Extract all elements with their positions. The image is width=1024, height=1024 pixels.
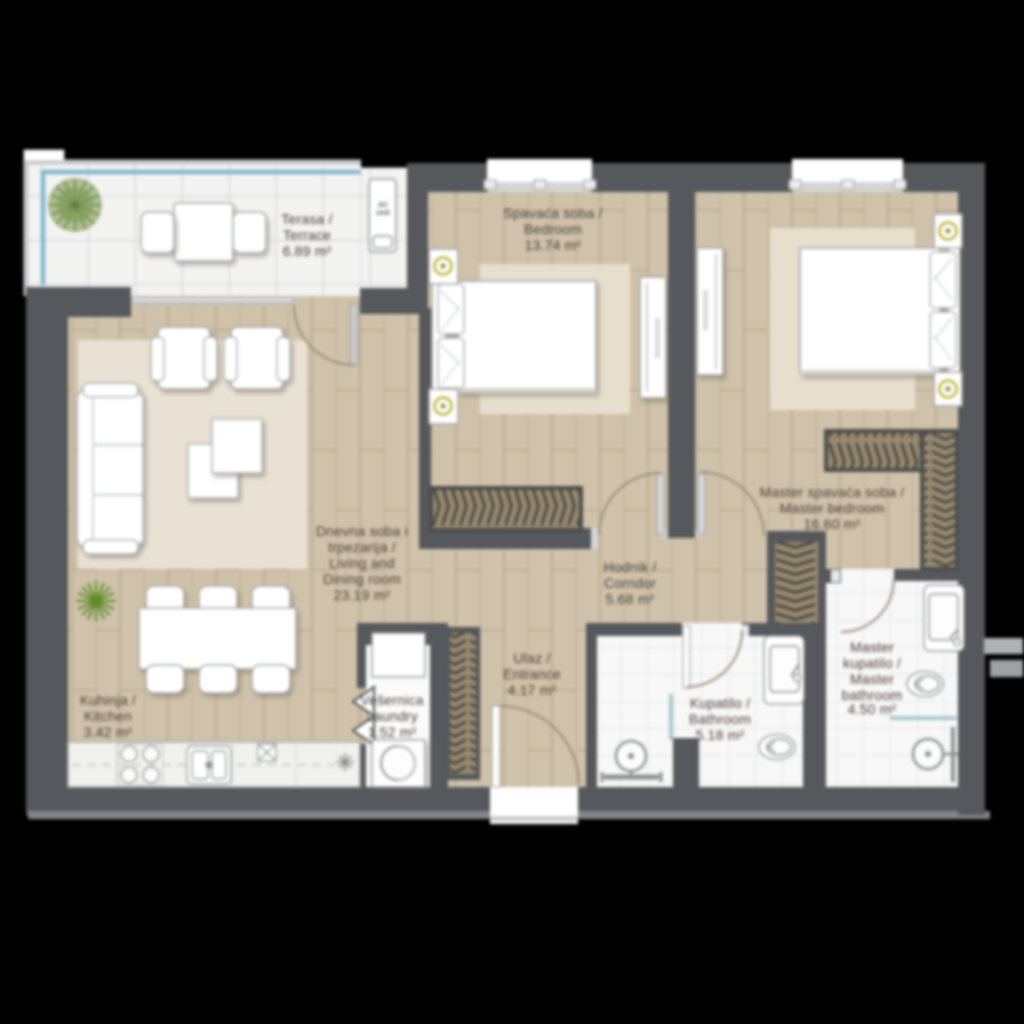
svg-text:1.52 m²: 1.52 m² — [368, 724, 417, 740]
svg-text:Unit: Unit — [376, 210, 390, 217]
svg-text:Corridor: Corridor — [604, 575, 656, 591]
svg-text:Master: Master — [850, 639, 894, 655]
svg-text:Kuhinja /: Kuhinja / — [80, 692, 136, 708]
svg-text:Living and: Living and — [329, 555, 395, 571]
svg-text:Kupatilo /: Kupatilo / — [690, 695, 750, 711]
svg-text:13.74 m²: 13.74 m² — [525, 237, 582, 253]
svg-text:16.60 m²: 16.60 m² — [804, 516, 861, 532]
svg-text:Terasa /: Terasa / — [281, 211, 332, 227]
svg-text:Bathroom: Bathroom — [689, 711, 751, 727]
svg-text:trpezarija /: trpezarija / — [328, 539, 396, 555]
svg-text:Master: Master — [850, 671, 894, 687]
svg-text:Laundry: Laundry — [366, 708, 418, 724]
svg-text:Dining room: Dining room — [323, 571, 401, 587]
svg-text:Dnevna soba i: Dnevna soba i — [316, 523, 408, 539]
svg-text:Master spavaća soba /: Master spavaća soba / — [759, 484, 904, 500]
svg-text:5.68 m²: 5.68 m² — [606, 591, 655, 607]
svg-text:Entrance: Entrance — [503, 666, 561, 682]
svg-text:4.17 m²: 4.17 m² — [508, 682, 557, 698]
svg-text:23.19 m²: 23.19 m² — [334, 587, 391, 603]
svg-text:Terrace: Terrace — [283, 227, 331, 243]
svg-text:6.89 m²: 6.89 m² — [283, 243, 332, 259]
svg-text:Ulaz /: Ulaz / — [514, 650, 551, 666]
svg-text:Hodnik /: Hodnik / — [604, 559, 657, 575]
svg-text:Vešernica: Vešernica — [360, 692, 423, 708]
svg-text:3.42 m²: 3.42 m² — [84, 724, 133, 740]
svg-text:kupatilo /: kupatilo / — [843, 655, 901, 671]
svg-text:5.18 m²: 5.18 m² — [696, 727, 745, 743]
svg-text:Kitchen: Kitchen — [84, 708, 132, 724]
svg-text:AC: AC — [378, 202, 388, 209]
svg-text:Spavaća soba /: Spavaća soba / — [503, 205, 602, 221]
svg-text:Bedroom: Bedroom — [524, 221, 582, 237]
svg-text:Master bedroom: Master bedroom — [780, 500, 885, 516]
svg-text:4.50 m²: 4.50 m² — [848, 701, 897, 717]
